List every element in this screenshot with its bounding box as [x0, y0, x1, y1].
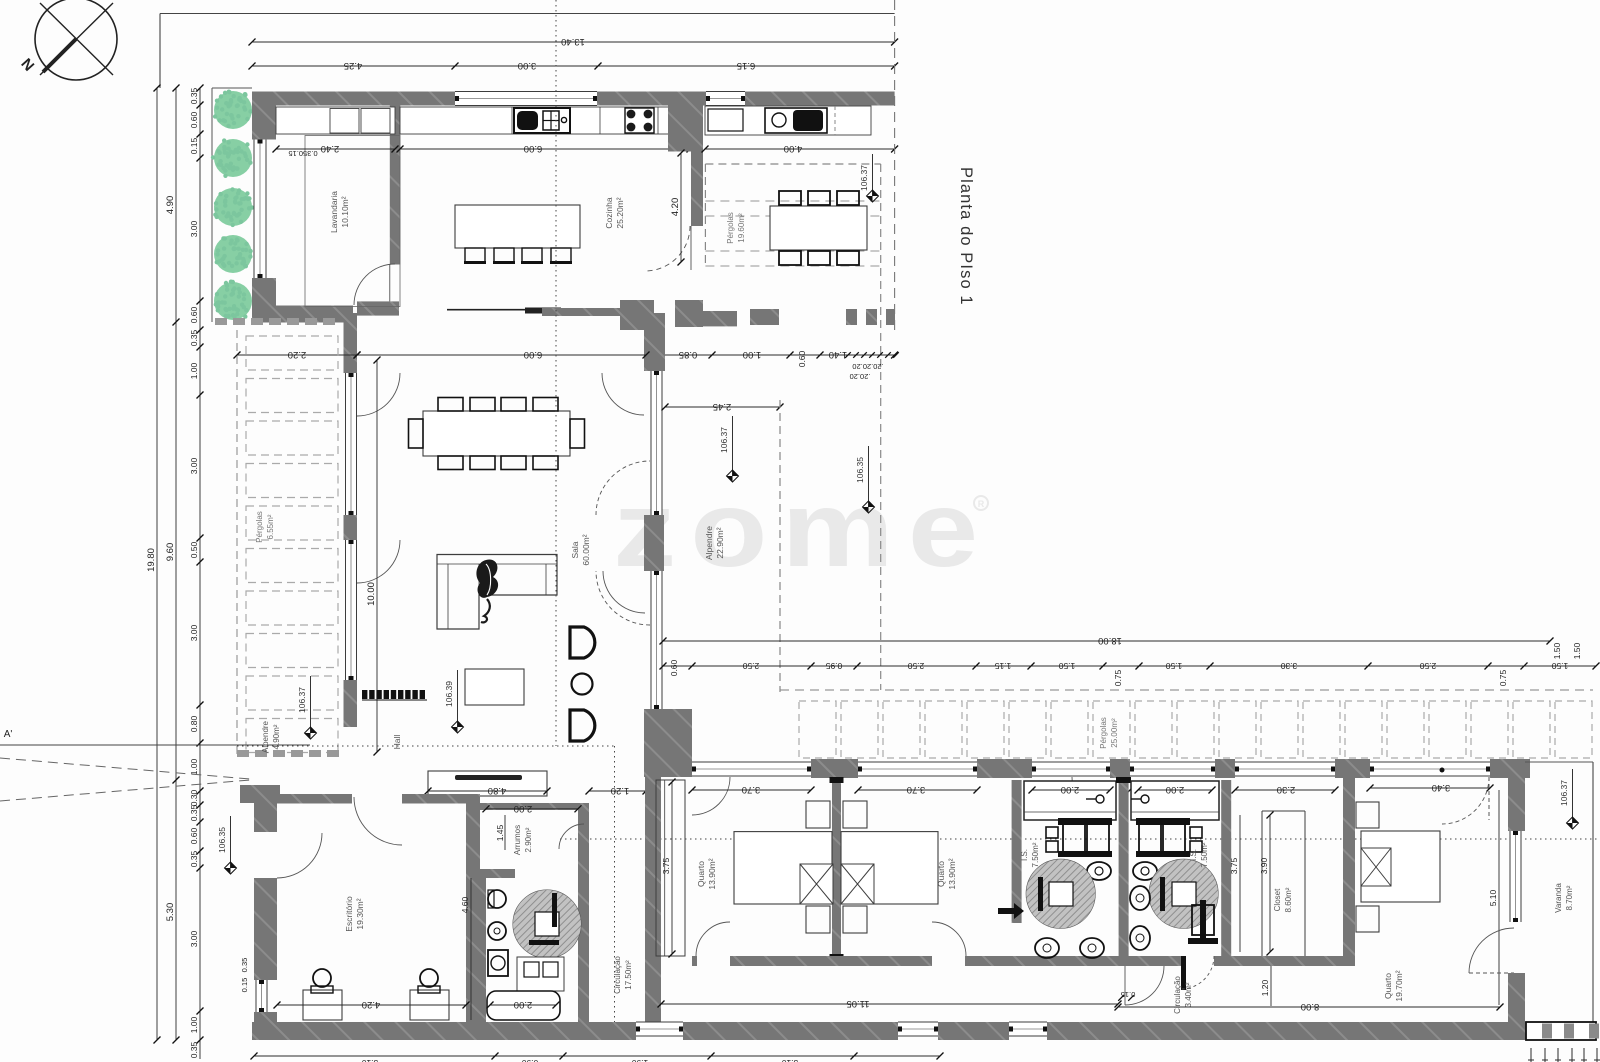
svg-text:1.50: 1.50: [1572, 642, 1582, 659]
svg-text:3.30: 3.30: [1280, 661, 1297, 671]
svg-text:2.30: 2.30: [1277, 784, 1296, 795]
svg-text:0.85: 0.85: [679, 349, 698, 360]
svg-text:Alpendre: Alpendre: [261, 720, 270, 753]
svg-text:5.30: 5.30: [165, 903, 176, 922]
svg-text:0.35: 0.35: [189, 1041, 199, 1058]
svg-text:1.00: 1.00: [189, 362, 199, 379]
svg-text:I.S.: I.S.: [1020, 849, 1029, 861]
svg-text:1.15: 1.15: [994, 661, 1011, 671]
svg-text:Closet: Closet: [1273, 888, 1282, 911]
svg-text:Escritório: Escritório: [344, 896, 354, 932]
svg-text:1.00: 1.00: [743, 349, 762, 360]
svg-text:0.15: 0.15: [189, 137, 199, 154]
svg-text:0.35: 0.35: [189, 329, 199, 346]
svg-text:1.50: 1.50: [1058, 661, 1075, 671]
svg-text:1.00: 1.00: [189, 1016, 199, 1033]
svg-text:22.90m²: 22.90m²: [715, 527, 725, 558]
svg-text:2.20: 2.20: [288, 349, 307, 360]
svg-text:3.00: 3.00: [189, 457, 199, 474]
svg-text:106.37: 106.37: [297, 687, 307, 713]
svg-text:2.50: 2.50: [742, 661, 759, 671]
svg-text:4.20: 4.20: [670, 198, 681, 217]
svg-text:I.S.: I.S.: [1189, 849, 1198, 861]
svg-text:4.60: 4.60: [460, 896, 470, 913]
svg-text:10.00: 10.00: [366, 582, 377, 606]
svg-text:zome: zome: [613, 469, 992, 589]
svg-text:8.00: 8.00: [1301, 1001, 1320, 1012]
svg-text:3.70: 3.70: [907, 784, 926, 795]
svg-text:7.50m²: 7.50m²: [1200, 842, 1209, 867]
svg-text:0.75: 0.75: [1113, 669, 1123, 686]
svg-text:A': A': [4, 729, 13, 740]
svg-text:0.35: 0.35: [189, 804, 199, 821]
svg-text:106.37: 106.37: [1559, 780, 1569, 806]
svg-text:2.45: 2.45: [713, 401, 732, 412]
svg-text:1.50: 1.50: [1551, 661, 1568, 671]
svg-text:Cozinha: Cozinha: [604, 197, 614, 228]
svg-text:3.90: 3.90: [1259, 857, 1269, 874]
svg-text:0.75: 0.75: [1498, 669, 1508, 686]
svg-text:19.60m²: 19.60m²: [737, 213, 746, 243]
svg-text:Pérgolas: Pérgolas: [1099, 717, 1108, 749]
svg-text:5.10: 5.10: [1488, 889, 1498, 906]
svg-text:3.75: 3.75: [1229, 857, 1239, 874]
svg-text:Hall: Hall: [392, 735, 402, 750]
svg-text:1.90: 1.90: [631, 1058, 648, 1062]
svg-text:Circulação: Circulação: [613, 956, 622, 994]
svg-text:3.00: 3.00: [189, 930, 199, 947]
svg-text:19.30m²: 19.30m²: [355, 898, 365, 929]
svg-text:4.20: 4.20: [362, 999, 381, 1010]
svg-text:3.00: 3.00: [518, 60, 537, 71]
svg-text:2.50: 2.50: [1419, 661, 1436, 671]
svg-text:1.50: 1.50: [1165, 661, 1182, 671]
svg-text:3.10: 3.10: [361, 1058, 378, 1062]
svg-text:18.00: 18.00: [1098, 635, 1122, 646]
svg-text:10.10m²: 10.10m²: [340, 196, 350, 227]
svg-text:2.90m²: 2.90m²: [524, 827, 533, 852]
svg-text:Alpendre: Alpendre: [704, 526, 714, 560]
svg-text:Sala: Sala: [570, 541, 580, 558]
svg-text:8.60m²: 8.60m²: [1284, 887, 1293, 912]
svg-text:106.35: 106.35: [217, 827, 227, 853]
svg-text:0.15: 0.15: [1121, 990, 1136, 999]
svg-text:Quarto: Quarto: [1383, 973, 1393, 999]
svg-text:.20.20.20: .20.20.20: [852, 362, 883, 371]
svg-text:106.37: 106.37: [719, 427, 729, 453]
svg-text:4.80: 4.80: [488, 785, 507, 796]
svg-text:Pérgolas: Pérgolas: [726, 212, 735, 244]
svg-text:6.00: 6.00: [524, 143, 543, 154]
svg-text:11.05: 11.05: [846, 998, 869, 1009]
svg-text:Quarto: Quarto: [696, 861, 706, 887]
svg-text:Varanda: Varanda: [1554, 883, 1563, 913]
svg-text:19.70m²: 19.70m²: [1394, 970, 1404, 1001]
svg-text:1.20: 1.20: [611, 785, 630, 796]
svg-text:25.20m²: 25.20m²: [615, 197, 625, 228]
svg-text:13.40: 13.40: [561, 36, 585, 47]
svg-text:Quarto: Quarto: [936, 861, 946, 887]
svg-text:13.90m²: 13.90m²: [947, 858, 957, 889]
svg-text:0.80: 0.80: [189, 715, 199, 732]
svg-text:106.39: 106.39: [444, 681, 454, 707]
svg-text:6.15: 6.15: [737, 60, 756, 71]
svg-text:2.50: 2.50: [907, 661, 924, 671]
svg-text:0.60: 0.60: [669, 659, 679, 676]
svg-text:0.35: 0.35: [189, 87, 199, 104]
svg-text:4.90: 4.90: [165, 196, 176, 215]
svg-text:3.75: 3.75: [661, 857, 671, 874]
svg-text:1.45: 1.45: [495, 824, 505, 841]
svg-text:0.30: 0.30: [189, 789, 199, 806]
svg-text:0.15: 0.15: [240, 978, 249, 993]
svg-text:2.00: 2.00: [514, 803, 533, 814]
svg-text:.20.20: .20.20: [850, 372, 871, 381]
svg-text:4.90m²: 4.90m²: [272, 724, 281, 749]
svg-text:4.25: 4.25: [344, 60, 363, 71]
svg-text:106.35: 106.35: [855, 457, 865, 483]
svg-text:3.40m²: 3.40m²: [1184, 982, 1193, 1007]
svg-text:2.00: 2.00: [1061, 784, 1080, 795]
svg-text:0.35: 0.35: [240, 958, 249, 973]
svg-text:7.50m²: 7.50m²: [1031, 842, 1040, 867]
svg-text:1.50: 1.50: [1552, 642, 1562, 659]
svg-text:3.00: 3.00: [189, 624, 199, 641]
svg-text:9.60: 9.60: [165, 543, 176, 562]
svg-text:6.00: 6.00: [524, 349, 543, 360]
svg-text:Lavandaria: Lavandaria: [329, 191, 339, 233]
svg-text:Arrumos: Arrumos: [513, 825, 522, 855]
svg-text:0.60: 0.60: [189, 306, 199, 323]
svg-text:106.37: 106.37: [859, 165, 869, 191]
svg-text:Circulação: Circulação: [1173, 976, 1182, 1014]
svg-text:1.20: 1.20: [1260, 979, 1270, 996]
svg-text:4.00: 4.00: [784, 143, 803, 154]
svg-text:0.60: 0.60: [189, 111, 199, 128]
svg-text:2.00: 2.00: [1166, 784, 1185, 795]
svg-text:3.40: 3.40: [1432, 782, 1451, 793]
svg-text:8.70m²: 8.70m²: [1565, 885, 1574, 910]
svg-text:0.90: 0.90: [521, 1058, 538, 1062]
svg-text:60.00m²: 60.00m²: [581, 534, 591, 565]
svg-text:3.00: 3.00: [189, 220, 199, 237]
svg-text:1.40: 1.40: [829, 349, 848, 360]
svg-text:1.00: 1.00: [189, 758, 199, 775]
svg-text:0.60: 0.60: [189, 827, 199, 844]
svg-text:0.95: 0.95: [825, 661, 842, 671]
svg-text:2.00: 2.00: [514, 999, 533, 1010]
svg-text:13.90m²: 13.90m²: [707, 858, 717, 889]
svg-text:0.60: 0.60: [797, 350, 807, 367]
svg-text:2.40: 2.40: [321, 143, 340, 154]
svg-text:25.00m²: 25.00m²: [1110, 718, 1119, 748]
svg-text:3.70: 3.70: [742, 784, 761, 795]
svg-text:19.80: 19.80: [146, 548, 157, 572]
svg-text:Planta do PIso 1: Planta do PIso 1: [957, 167, 975, 306]
svg-text:0.50: 0.50: [189, 541, 199, 558]
svg-text:17.50m²: 17.50m²: [624, 960, 633, 990]
svg-text:0.35: 0.35: [189, 850, 199, 867]
svg-text:6.55m²: 6.55m²: [266, 514, 275, 539]
svg-text:Pérgolas: Pérgolas: [255, 511, 264, 543]
svg-text:0.350.15: 0.350.15: [288, 149, 317, 158]
svg-text:3.10: 3.10: [781, 1058, 798, 1062]
svg-text:R: R: [978, 499, 985, 509]
